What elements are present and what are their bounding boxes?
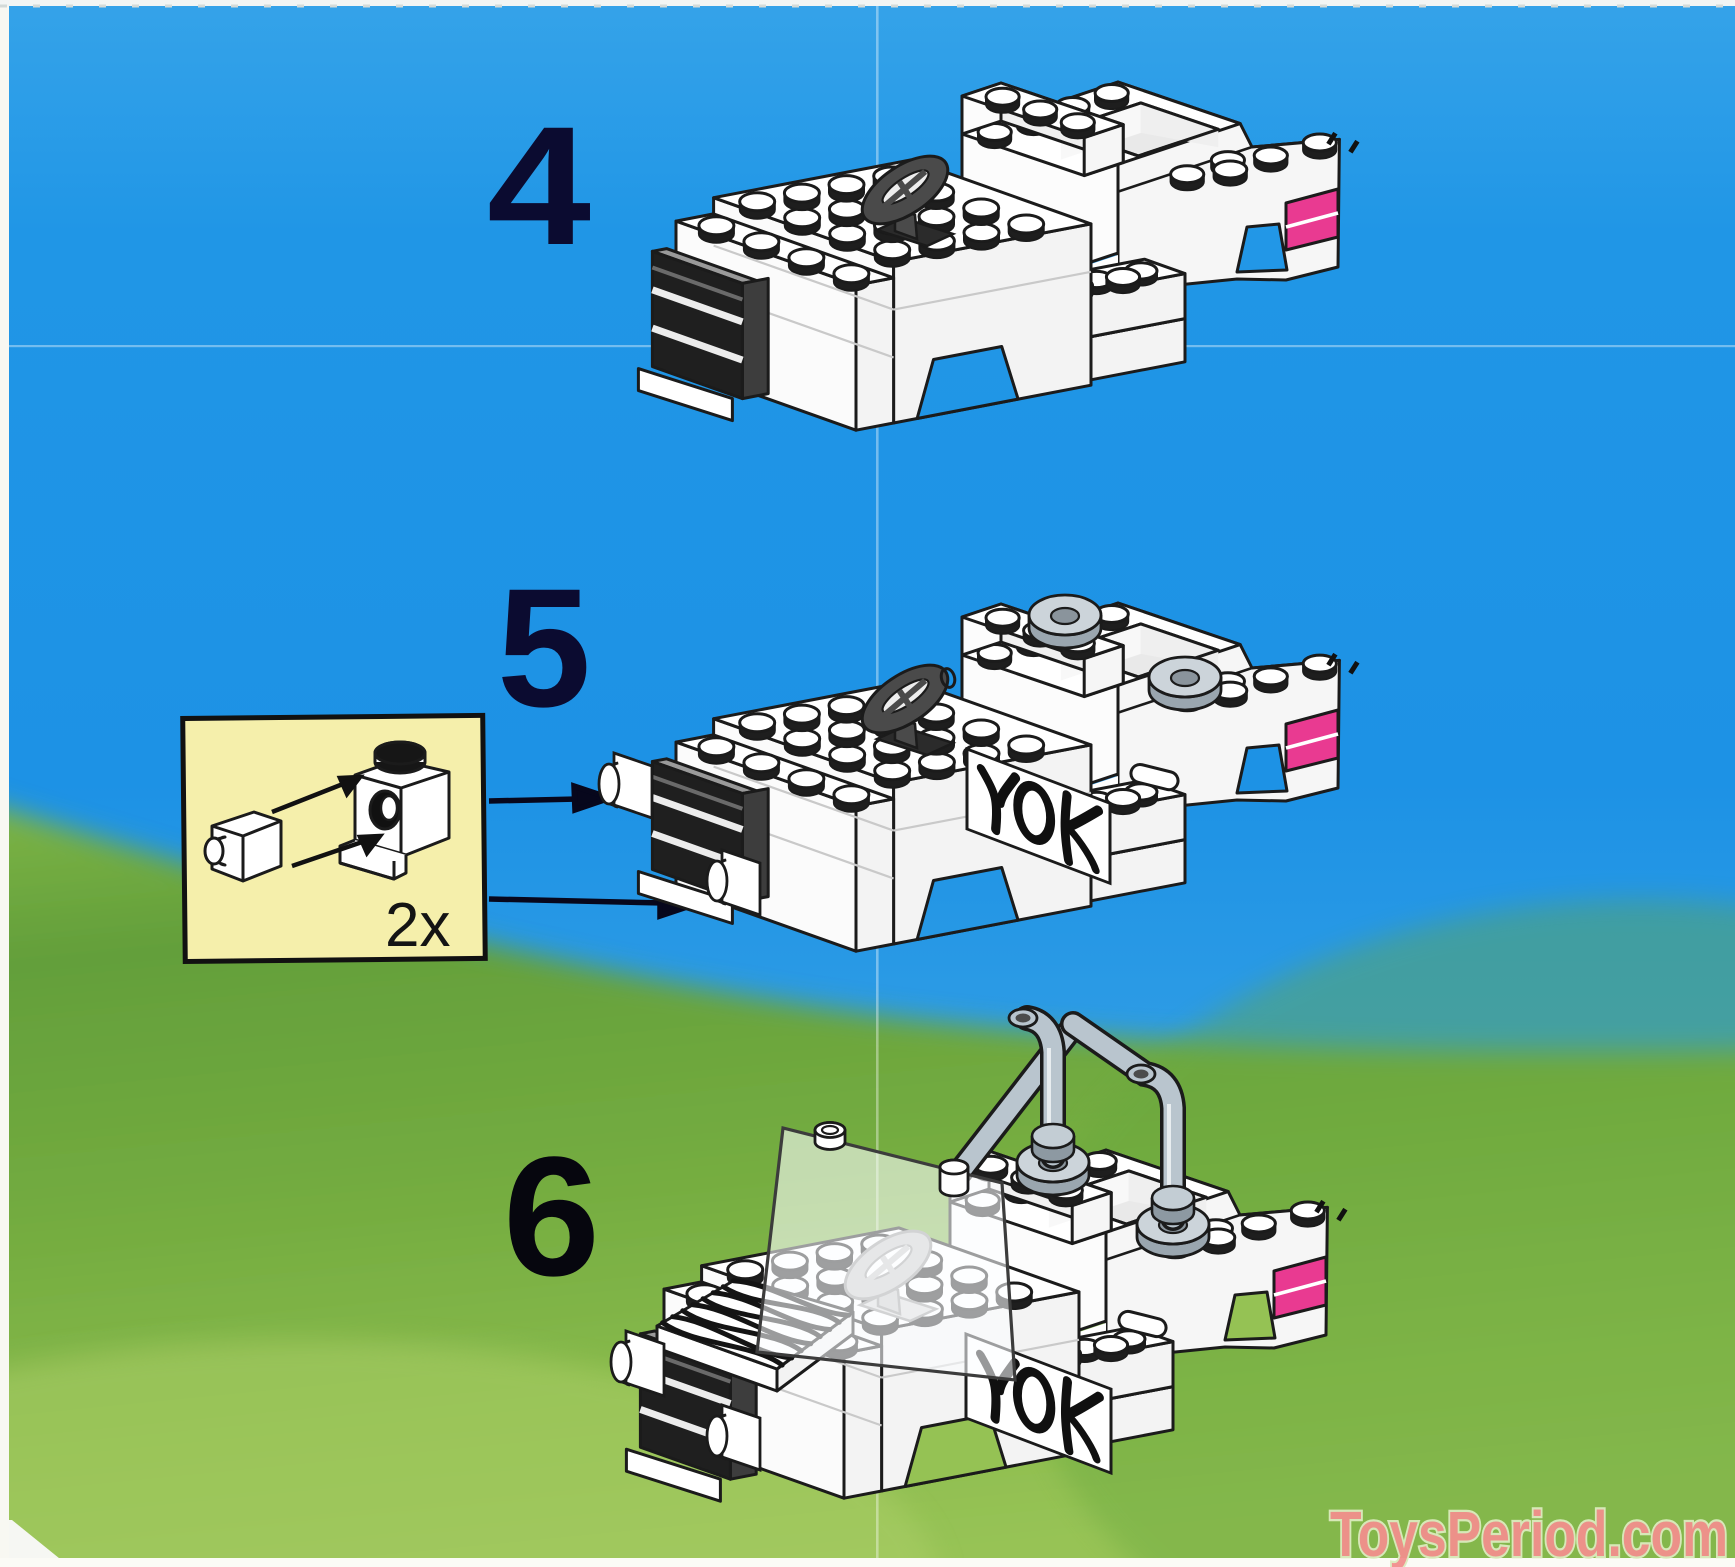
svg-text:5: 5	[497, 553, 591, 742]
svg-text:4: 4	[487, 91, 591, 280]
svg-text:ToysPeriod.com: ToysPeriod.com	[1330, 1498, 1728, 1567]
svg-text:6: 6	[503, 1122, 600, 1312]
svg-text:2x: 2x	[385, 891, 450, 960]
